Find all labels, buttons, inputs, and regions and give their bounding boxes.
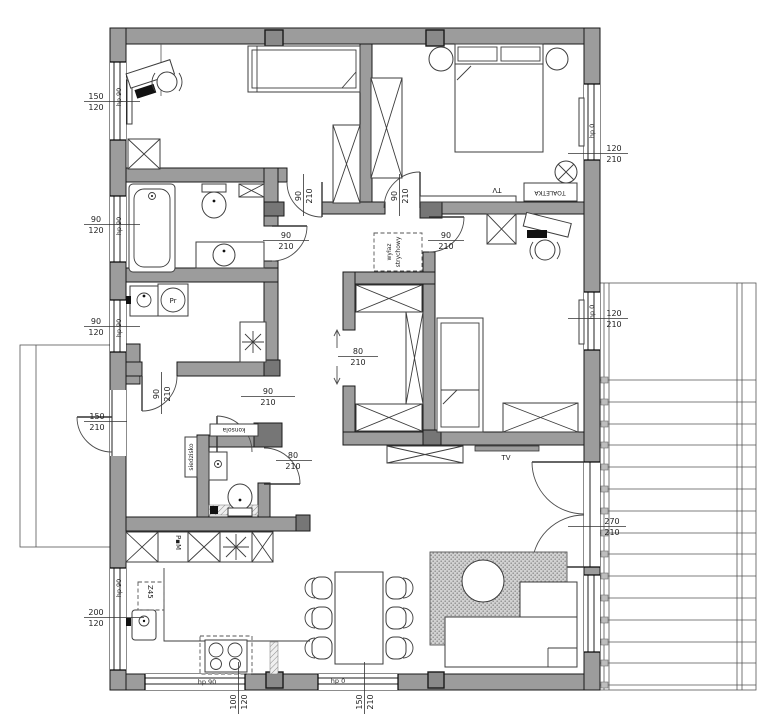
svg-text:270: 270 xyxy=(604,517,619,526)
washbasin-counter xyxy=(196,242,264,268)
window-room3 xyxy=(584,292,600,350)
bathroom-cabinet xyxy=(239,184,264,197)
window-kitchen-bottom xyxy=(145,674,245,690)
floor-plan-canvas: TV TOALETKA Pr xyxy=(0,0,768,714)
tv-screen xyxy=(475,446,539,451)
svg-text:90: 90 xyxy=(390,191,399,201)
chimney-flue xyxy=(265,30,283,46)
svg-text:80: 80 xyxy=(288,451,298,460)
washing-machine-label: Pr xyxy=(170,297,177,305)
dressing-table-label: TOALETKA xyxy=(534,189,567,196)
dim-den: 120 xyxy=(88,103,103,112)
svg-text:90: 90 xyxy=(91,215,101,224)
svg-text:210: 210 xyxy=(89,423,104,432)
cooktop xyxy=(200,636,252,674)
svg-text:90: 90 xyxy=(281,231,291,240)
attic-hatch-label-2: strychowy xyxy=(395,236,402,267)
console-label: konsola xyxy=(222,426,245,433)
attic-hatch-label-1: wyłaz xyxy=(386,244,393,261)
svg-text:100: 100 xyxy=(229,694,238,709)
svg-text:210: 210 xyxy=(604,528,619,537)
svg-text:210: 210 xyxy=(401,188,410,203)
svg-text:120: 120 xyxy=(240,694,249,709)
radiator xyxy=(579,98,584,146)
wardrobe xyxy=(503,403,578,432)
wall-pier xyxy=(420,201,442,218)
wall-pier xyxy=(264,202,284,216)
hp-label: hp 90 xyxy=(115,217,123,236)
freezer-icon xyxy=(240,322,266,362)
window-master xyxy=(584,84,600,160)
svg-text:90: 90 xyxy=(263,387,273,396)
hp-label: hp 0 xyxy=(588,124,596,138)
bedside-table xyxy=(546,48,568,70)
svg-text:120: 120 xyxy=(606,144,621,153)
wc-sink xyxy=(209,452,227,480)
svg-text:120: 120 xyxy=(88,328,103,337)
cabinet-filler xyxy=(270,642,278,674)
hp-label: hp 90 xyxy=(115,579,123,598)
hp-label: hp 90 xyxy=(115,88,123,107)
toilet xyxy=(202,184,226,218)
svg-text:210: 210 xyxy=(606,320,621,329)
desk-monitor xyxy=(527,230,547,238)
entry-door-opening xyxy=(110,390,126,456)
single-bed xyxy=(248,46,360,92)
tv-sideboard xyxy=(387,446,463,463)
wardrobe xyxy=(406,312,423,404)
laundry-sink xyxy=(126,286,158,316)
wardrobe xyxy=(487,214,516,244)
tall-cabinet xyxy=(126,532,158,562)
dishwasher-label: Z45 xyxy=(146,585,154,599)
bench-seat-label: siedzisko xyxy=(188,443,195,470)
fridge-icon xyxy=(220,532,252,562)
drain xyxy=(210,506,218,514)
svg-text:90: 90 xyxy=(441,231,451,240)
svg-text:210: 210 xyxy=(606,155,621,164)
coffee-table xyxy=(462,560,504,602)
svg-text:80: 80 xyxy=(353,347,363,356)
hp-label: hp 90 xyxy=(115,319,123,338)
svg-text:120: 120 xyxy=(88,226,103,235)
chimney-flue xyxy=(266,672,283,688)
tv-shelf xyxy=(420,196,516,202)
svg-text:210: 210 xyxy=(285,462,300,471)
svg-text:210: 210 xyxy=(163,386,172,401)
dressing-table: TOALETKA xyxy=(524,183,577,201)
svg-text:120: 120 xyxy=(88,619,103,628)
radiator xyxy=(579,300,584,344)
hp-label: hp 0 xyxy=(588,305,596,319)
svg-text:210: 210 xyxy=(278,242,293,251)
single-bed xyxy=(437,318,483,432)
double-bed xyxy=(455,44,543,152)
wardrobe xyxy=(356,404,422,431)
french-door-terrace xyxy=(584,462,600,567)
svg-text:210: 210 xyxy=(305,188,314,203)
bedside-table xyxy=(429,47,453,71)
svg-text:90: 90 xyxy=(294,191,303,201)
floor-plan-page: TV TOALETKA Pr xyxy=(0,0,768,714)
window-living xyxy=(584,575,600,652)
chimney-flue xyxy=(428,672,444,688)
wardrobe xyxy=(333,125,360,203)
tall-cabinet xyxy=(252,532,273,562)
dim-num: 150 xyxy=(88,92,103,101)
svg-text:150: 150 xyxy=(89,412,104,421)
hp-label: hp 0 xyxy=(331,677,345,685)
oven-column-label: P▪M xyxy=(174,535,182,550)
console-table: konsola xyxy=(210,424,258,436)
wardrobe xyxy=(356,285,422,312)
svg-text:210: 210 xyxy=(366,694,375,709)
chimney-flue xyxy=(426,30,444,46)
svg-text:150: 150 xyxy=(355,694,364,709)
tall-cabinet xyxy=(188,532,220,562)
svg-text:90: 90 xyxy=(152,389,161,399)
wardrobe xyxy=(128,139,160,169)
tv-label-living: TV xyxy=(500,454,510,462)
wc-toilet xyxy=(228,484,252,516)
dining-area xyxy=(305,572,413,664)
svg-text:120: 120 xyxy=(606,309,621,318)
oven-microwave-column: P▪M xyxy=(158,532,188,562)
bathtub xyxy=(129,184,175,272)
svg-text:210: 210 xyxy=(438,242,453,251)
hp-label: hp 90 xyxy=(198,678,217,686)
wardrobe xyxy=(371,78,402,178)
svg-text:200: 200 xyxy=(88,608,103,617)
bench-seat: siedzisko xyxy=(185,437,197,477)
tv-label-bedroom: TV xyxy=(492,186,502,194)
svg-text:90: 90 xyxy=(91,317,101,326)
dressing-stool xyxy=(555,161,577,183)
dining-table xyxy=(335,572,383,664)
svg-text:210: 210 xyxy=(260,398,275,407)
wall-pier xyxy=(296,515,310,531)
washing-machine: Pr xyxy=(158,284,188,316)
svg-text:210: 210 xyxy=(350,358,365,367)
